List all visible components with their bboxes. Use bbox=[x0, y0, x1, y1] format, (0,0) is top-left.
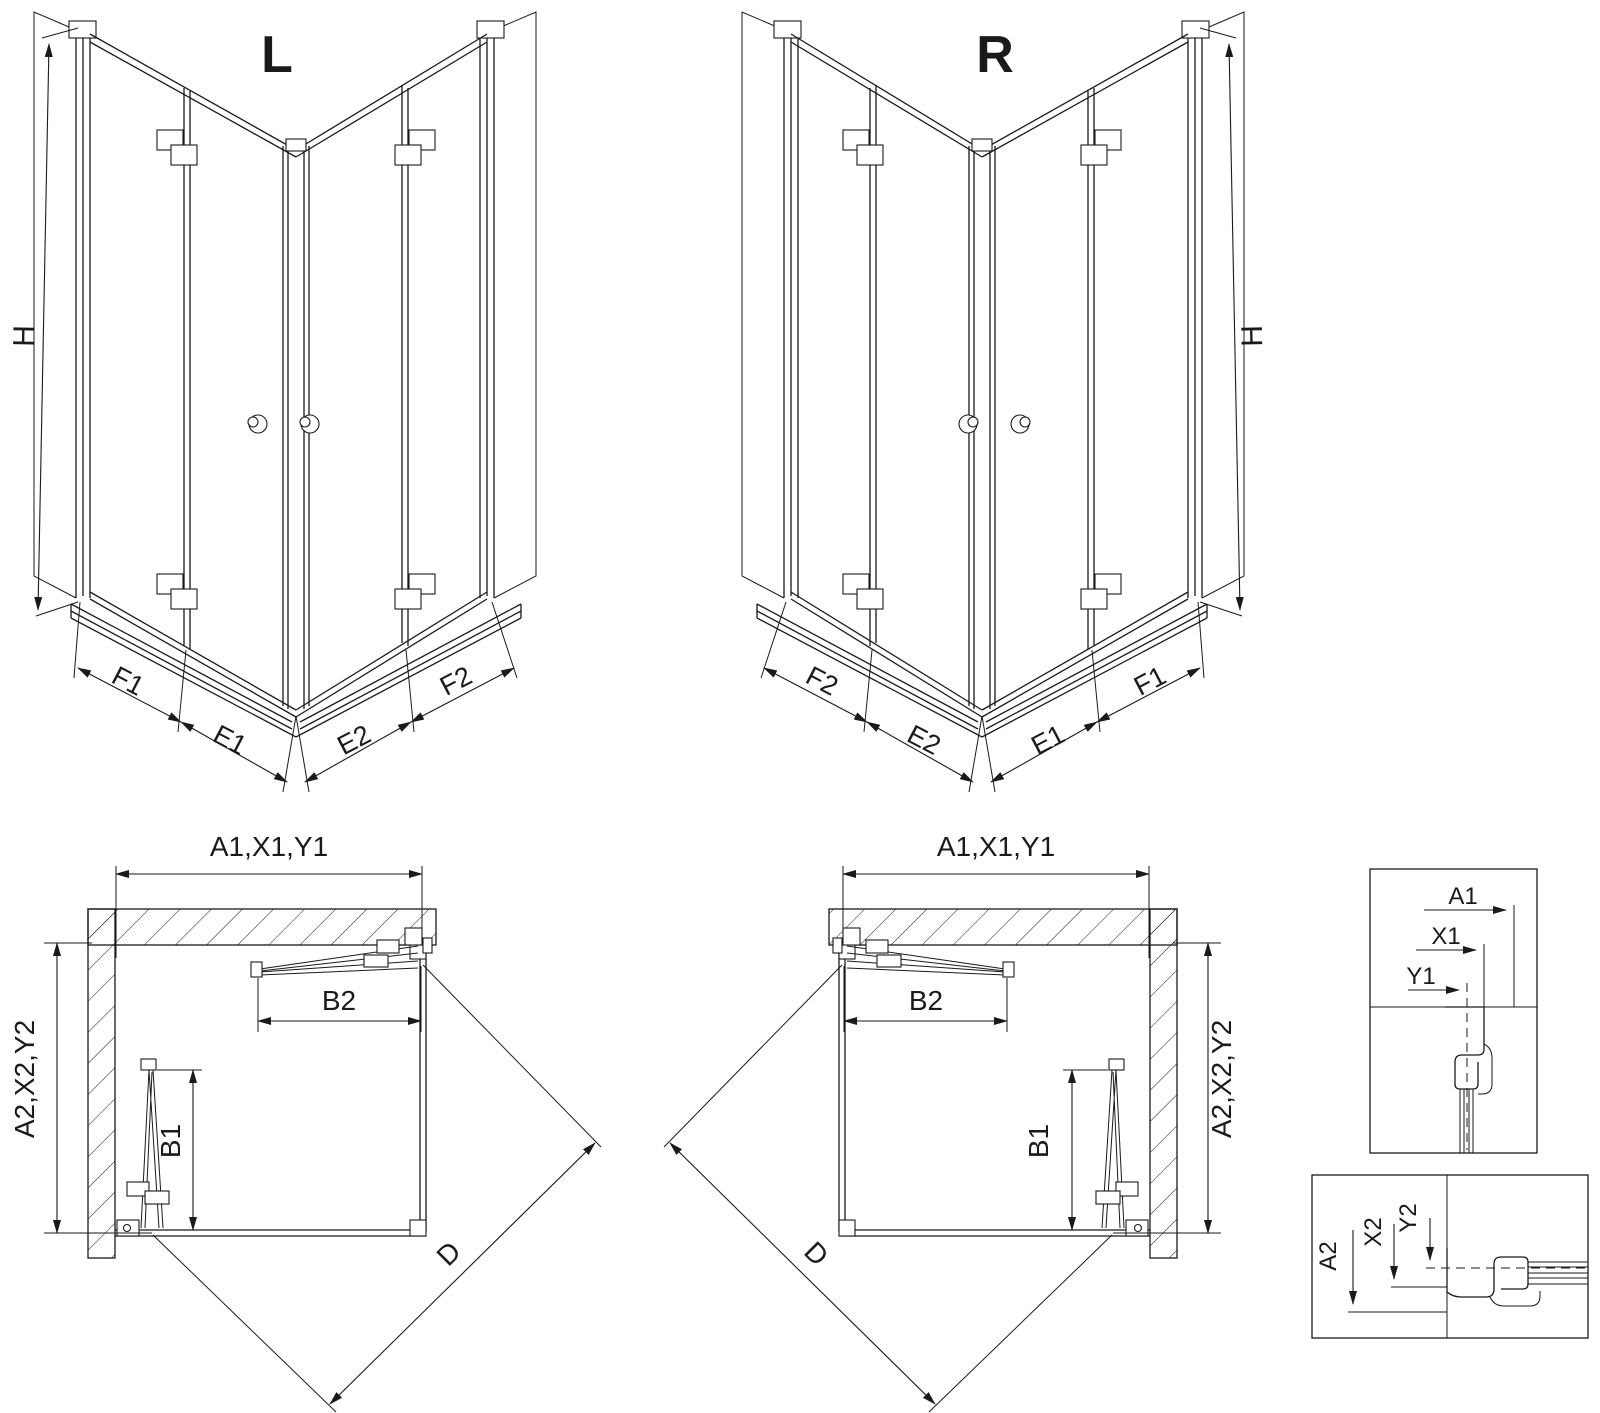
plan-right-b1-label: B1 bbox=[1023, 1124, 1054, 1158]
detail-x2-label: X2 bbox=[1360, 1217, 1387, 1246]
detail-a1-label: A1 bbox=[1448, 883, 1477, 910]
wall-side-right-plan bbox=[1150, 909, 1177, 1258]
detail-y1-label: Y1 bbox=[1406, 963, 1435, 990]
plan-right-width-label: A1,X1,Y1 bbox=[937, 831, 1055, 862]
height-dim-label-left: H bbox=[8, 325, 41, 347]
plan-right-depth-label: A2,X2,Y2 bbox=[1206, 1020, 1237, 1138]
background bbox=[0, 0, 1600, 1413]
wall-side-left-plan bbox=[88, 909, 115, 1258]
variant-title-right: R bbox=[976, 26, 1014, 84]
plan-right-b2-label: B2 bbox=[909, 985, 943, 1016]
drawing-canvas: L R H H F1 E1 E2 F2 F2 E2 E1 F1 A1,X1,Y1… bbox=[0, 0, 1600, 1413]
plan-left-b1-label: B1 bbox=[155, 1124, 186, 1158]
variant-title-left: L bbox=[261, 26, 293, 84]
plan-left-depth-label: A2,X2,Y2 bbox=[9, 1020, 40, 1138]
plan-left-width-label: A1,X1,Y1 bbox=[210, 831, 328, 862]
height-dim-label-right: H bbox=[1236, 325, 1269, 347]
detail-a2-label: A2 bbox=[1315, 1241, 1342, 1270]
shower-enclosure-technical-drawing: L R H H F1 E1 E2 F2 F2 E2 E1 F1 A1,X1,Y1… bbox=[0, 0, 1600, 1413]
detail-y2-label: Y2 bbox=[1395, 1203, 1422, 1232]
plan-left-b2-label: B2 bbox=[322, 985, 356, 1016]
detail-x1-label: X1 bbox=[1431, 923, 1460, 950]
